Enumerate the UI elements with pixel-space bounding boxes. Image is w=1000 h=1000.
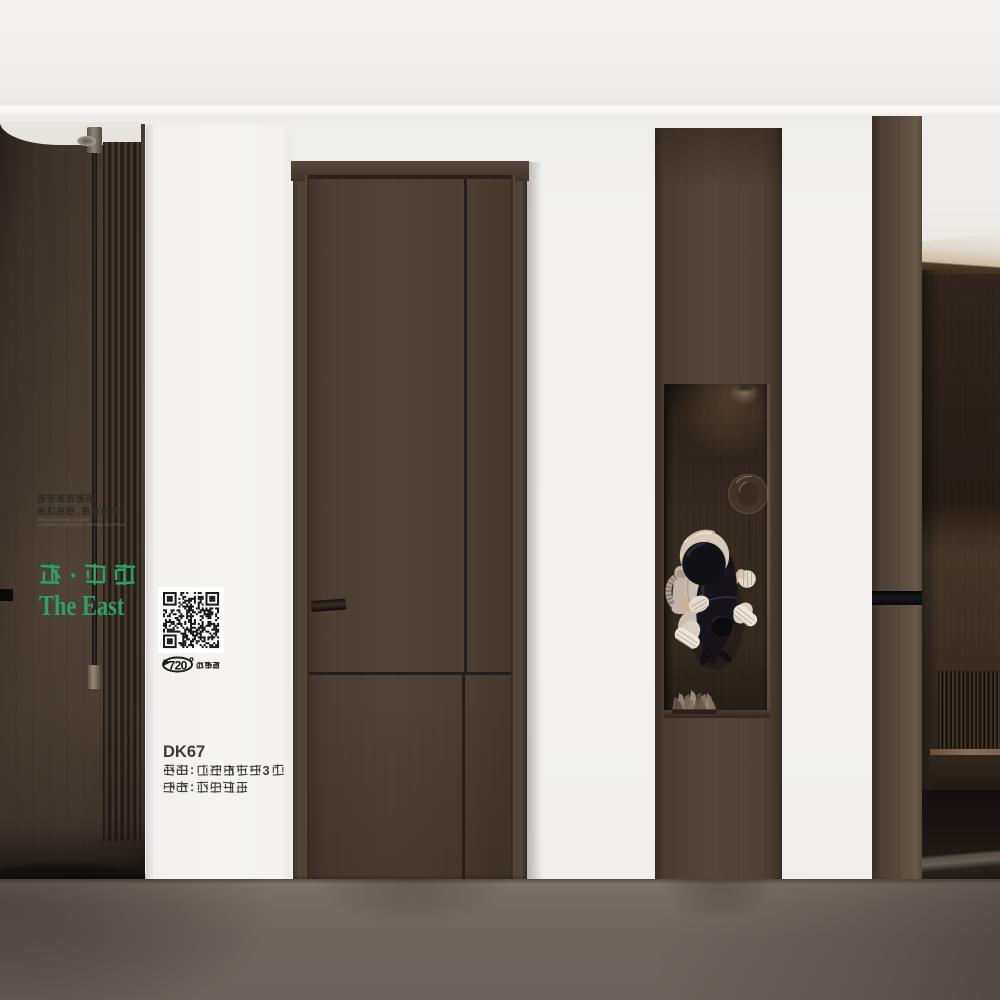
svg-text:3: 3 [263,763,270,778]
svg-text:720: 720 [169,658,188,672]
